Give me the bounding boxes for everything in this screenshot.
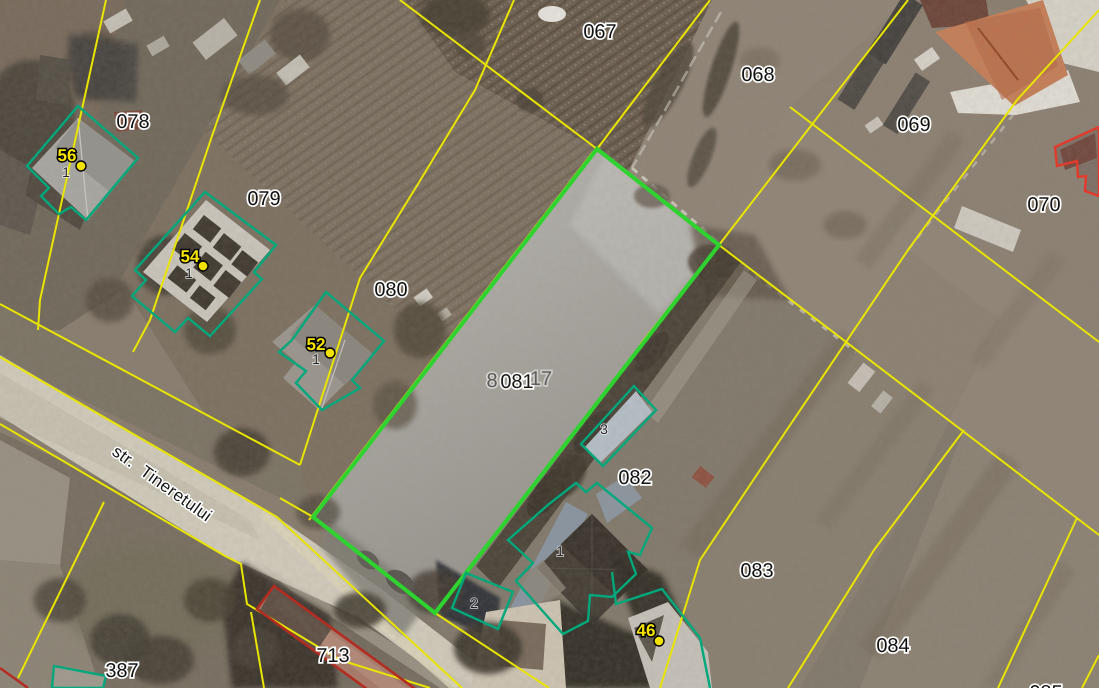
svg-text:54: 54 xyxy=(181,247,200,266)
svg-text:084: 084 xyxy=(876,635,909,657)
svg-text:1: 1 xyxy=(312,351,320,367)
svg-text:069: 069 xyxy=(897,114,930,136)
svg-text:17: 17 xyxy=(530,368,552,390)
svg-text:56: 56 xyxy=(58,146,77,165)
svg-text:067: 067 xyxy=(583,21,616,43)
svg-text:081: 081 xyxy=(500,371,533,393)
svg-text:078: 078 xyxy=(116,111,149,133)
svg-text:080: 080 xyxy=(374,279,407,301)
svg-text:082: 082 xyxy=(618,467,651,489)
svg-text:2: 2 xyxy=(470,595,478,611)
svg-text:1: 1 xyxy=(185,265,193,281)
svg-text:8: 8 xyxy=(486,370,497,392)
svg-text:083: 083 xyxy=(740,560,773,582)
svg-text:085: 085 xyxy=(1029,682,1062,688)
svg-text:46: 46 xyxy=(637,621,656,640)
svg-text:387: 387 xyxy=(105,660,138,682)
svg-text:1: 1 xyxy=(62,164,70,180)
svg-text:070: 070 xyxy=(1027,194,1060,216)
svg-text:713: 713 xyxy=(316,645,349,667)
svg-text:079: 079 xyxy=(247,188,280,210)
svg-text:068: 068 xyxy=(741,64,774,86)
svg-text:3: 3 xyxy=(600,421,608,437)
svg-text:1: 1 xyxy=(556,543,564,559)
